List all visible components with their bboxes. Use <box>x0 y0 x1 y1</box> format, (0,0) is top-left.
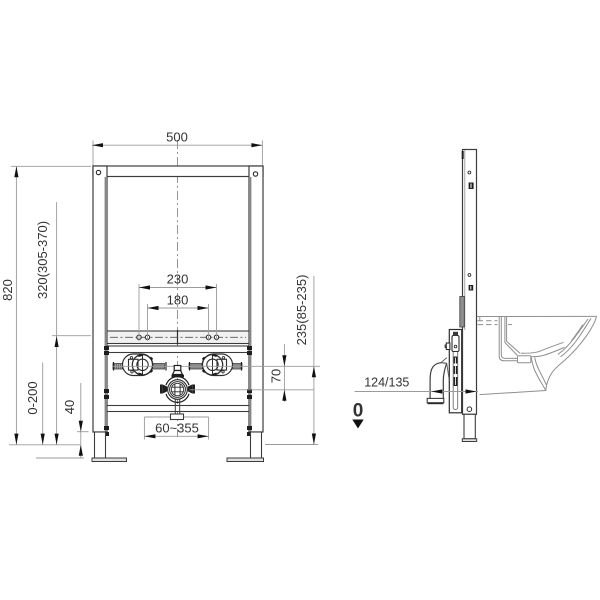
svg-text:40: 40 <box>62 400 77 414</box>
svg-text:124/135: 124/135 <box>364 376 409 390</box>
svg-text:230: 230 <box>167 272 189 287</box>
svg-text:0: 0 <box>353 401 364 422</box>
svg-text:60~355: 60~355 <box>155 421 199 436</box>
svg-text:235(85-235): 235(85-235) <box>294 275 309 346</box>
svg-text:180: 180 <box>167 293 189 308</box>
svg-text:0-200: 0-200 <box>25 381 40 414</box>
svg-text:820: 820 <box>0 279 15 301</box>
svg-text:500: 500 <box>166 130 188 145</box>
svg-text:320(305-370): 320(305-370) <box>35 221 50 299</box>
svg-text:70: 70 <box>269 369 284 383</box>
